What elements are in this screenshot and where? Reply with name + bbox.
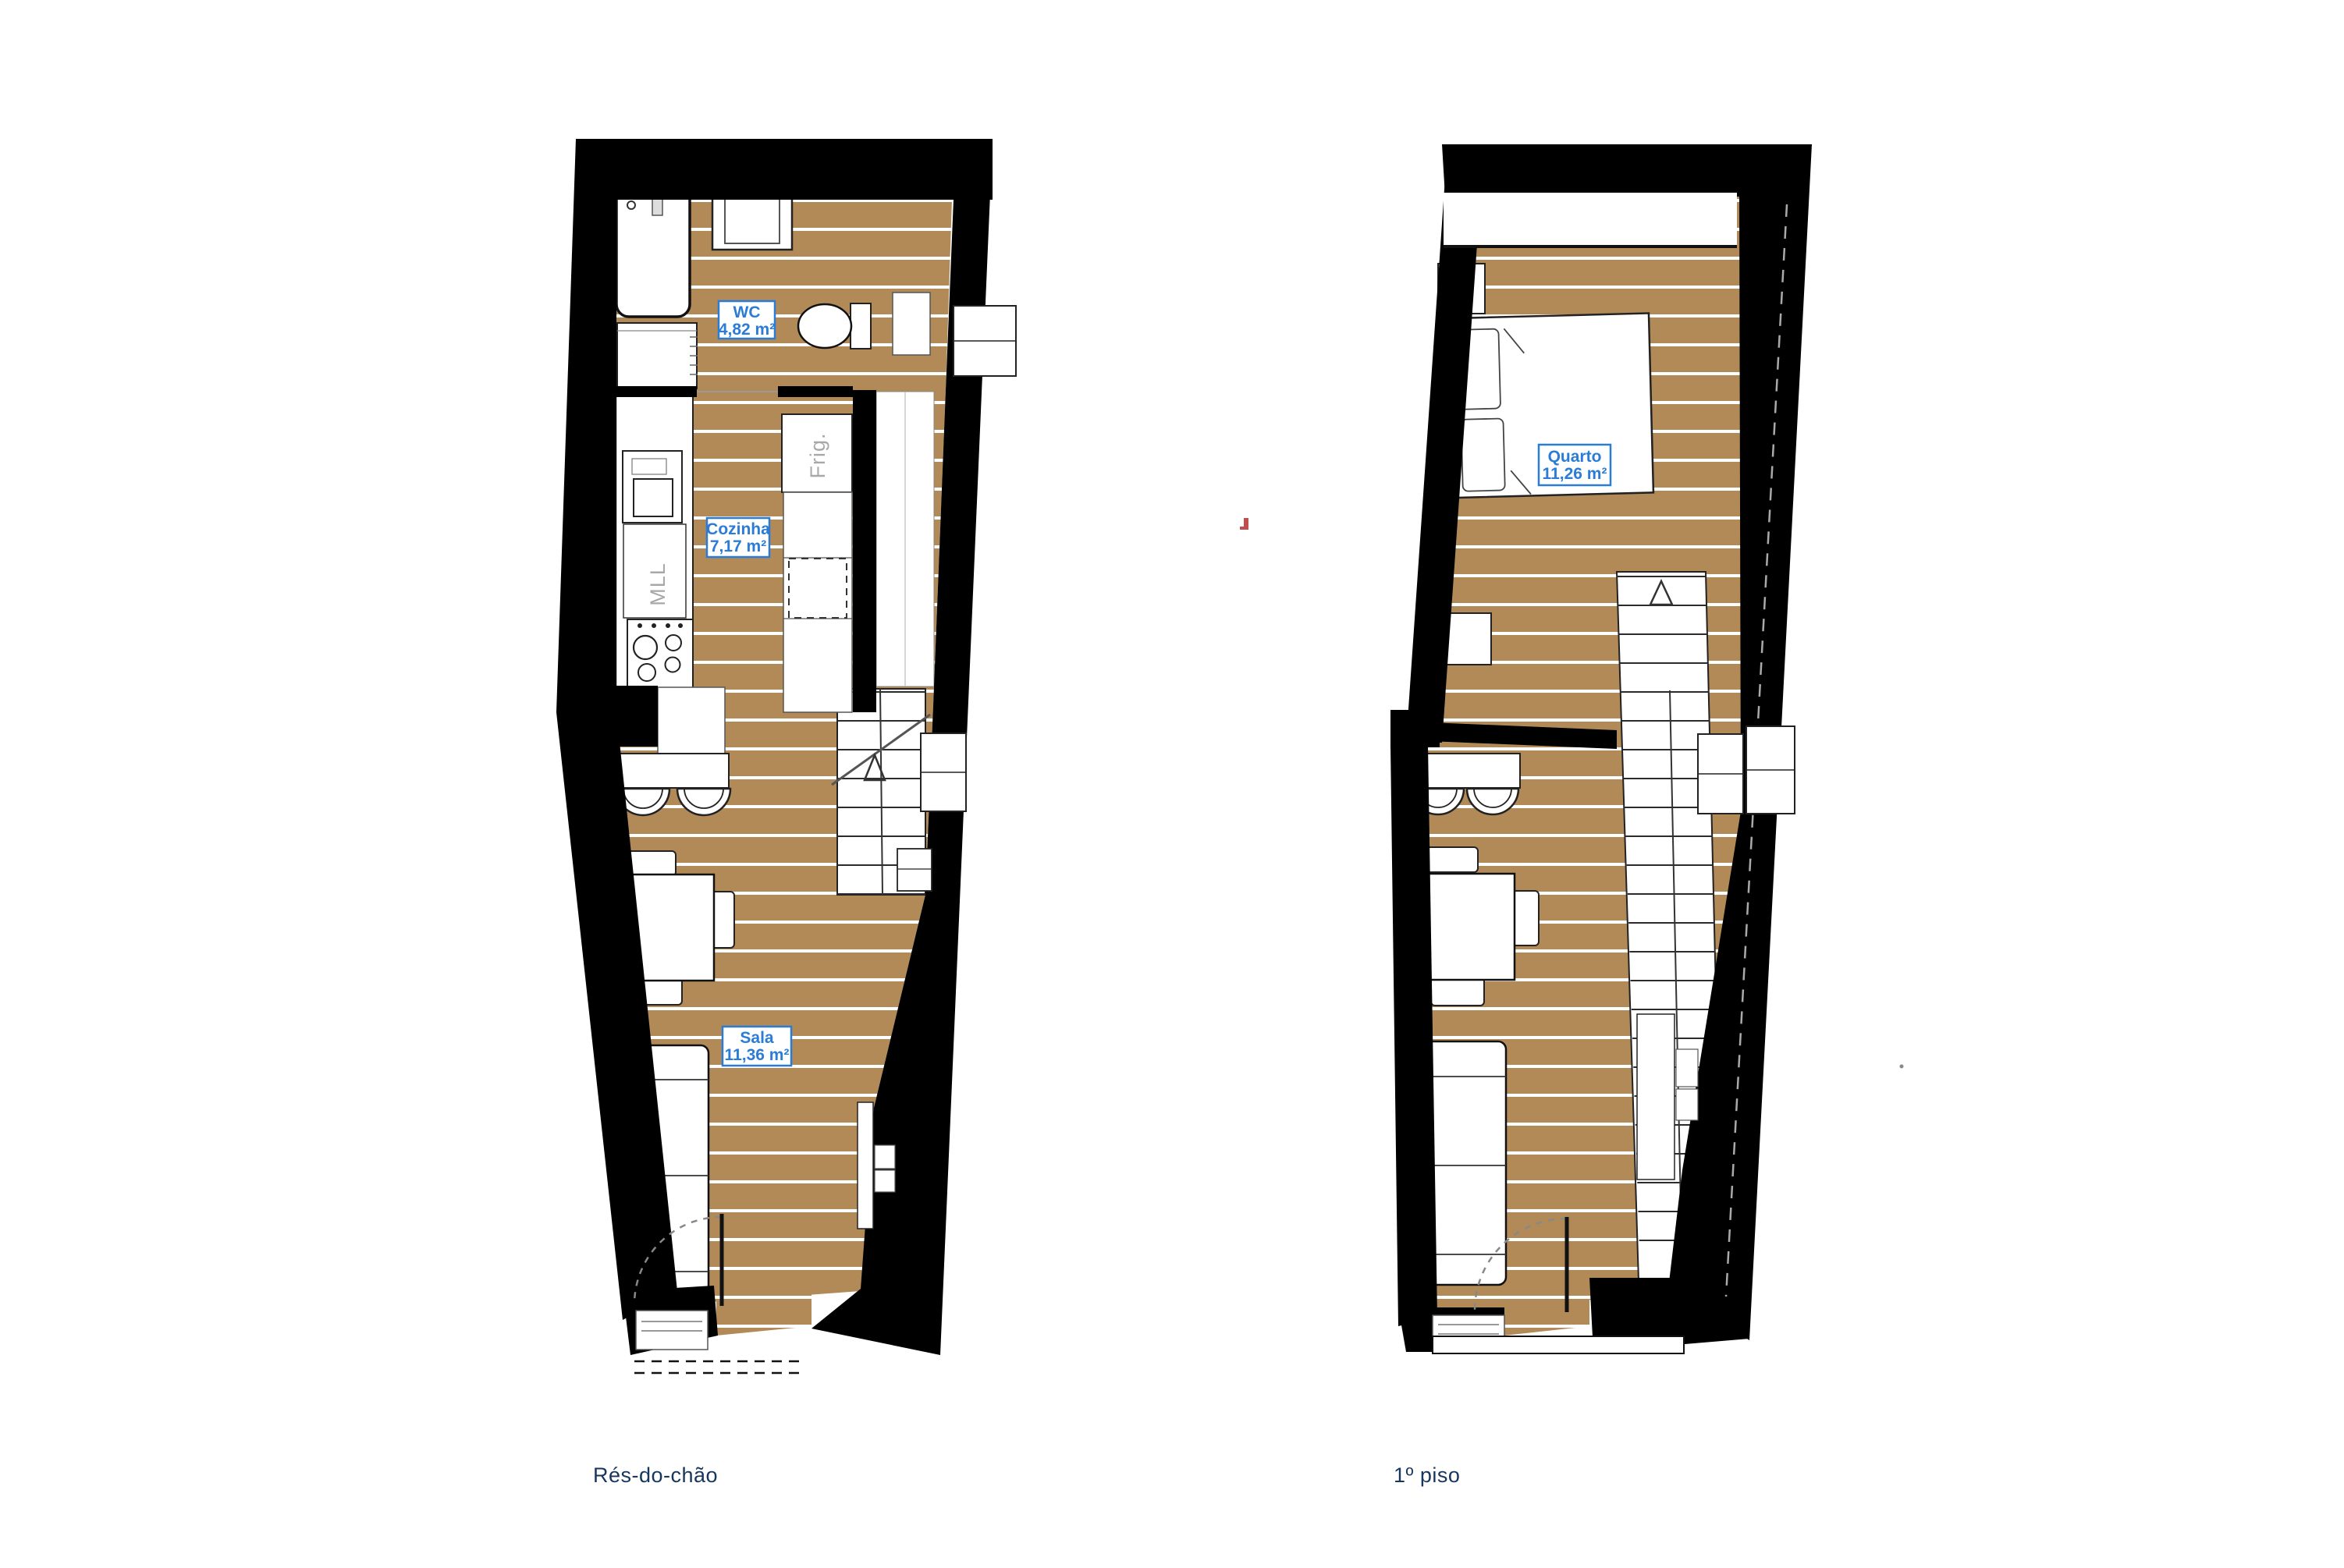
room-label-quarto: Quarto 11,26 m² <box>1539 445 1611 485</box>
caption-ground-floor: Rés-do-chão <box>593 1463 718 1488</box>
caption-first-floor: 1º piso <box>1394 1463 1460 1488</box>
room-area: 11,26 m² <box>1543 465 1607 483</box>
room-name: Sala <box>740 1029 774 1047</box>
chair <box>1512 891 1539 945</box>
room-area: 7,17 m² <box>710 537 766 555</box>
toilet-cistern <box>851 303 871 349</box>
chair <box>1426 847 1478 872</box>
room-label-cozinha: Cozinha 7,17 m² <box>706 518 770 557</box>
kitchen-sink <box>623 451 682 523</box>
service-shaft <box>876 392 934 686</box>
wall-kitchen-column <box>853 390 876 712</box>
first-threshold-strip <box>1433 1336 1684 1353</box>
wc-window-box <box>954 306 1016 376</box>
wall-wc-divider-left <box>616 386 697 397</box>
red-stray-mark <box>1240 518 1248 530</box>
chair <box>1431 977 1484 1006</box>
dishwasher-label: MLL <box>646 562 669 606</box>
top-void-strip <box>1444 193 1737 247</box>
room-area: 11,36 m² <box>725 1046 790 1064</box>
first-floor-plan: Quarto 11,26 m² <box>1390 144 1812 1353</box>
ground-door-threshold-floor <box>716 1279 812 1336</box>
wall-wc-divider-right <box>778 386 853 397</box>
room-label-sala: Sala 11,36 m² <box>723 1027 791 1066</box>
gray-stray-dot <box>1900 1065 1904 1069</box>
pillow <box>1461 418 1504 491</box>
wc-vanity-unit <box>617 323 698 388</box>
tall-cabinet <box>783 492 852 712</box>
dishwasher-unit: MLL <box>623 524 686 618</box>
counter-end-panel <box>658 687 725 754</box>
wall-left-upper <box>556 139 616 712</box>
room-name: Quarto <box>1548 448 1602 466</box>
stair-window <box>1698 726 1795 814</box>
small-window <box>897 849 932 891</box>
room-name: Cozinha <box>706 520 770 538</box>
room-area: 4,82 m² <box>719 321 775 339</box>
room-label-wc: WC 4,82 m² <box>719 301 775 339</box>
first-door-threshold-floor <box>1504 1279 1589 1336</box>
toilet-bowl <box>798 304 851 348</box>
floor-plan-sheet: MLL Frig. <box>0 0 2344 1568</box>
fridge-label: Frig. <box>806 433 829 479</box>
fridge-unit: Frig. <box>782 414 852 492</box>
ground-floor-plan: MLL Frig. <box>556 139 1016 1373</box>
stair-window <box>921 733 966 811</box>
floor-plans-drawing: MLL Frig. <box>0 0 2344 1568</box>
wall-top <box>576 139 993 200</box>
stove <box>627 619 693 688</box>
wall-niche <box>893 293 930 355</box>
room-name: WC <box>733 303 761 321</box>
bathtub <box>616 187 690 317</box>
